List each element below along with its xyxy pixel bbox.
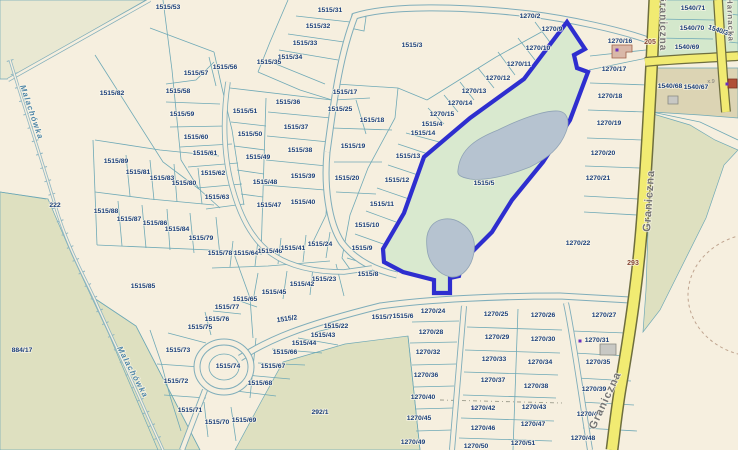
parcel-label[interactable]: 1515/49 [246, 154, 271, 161]
parcel-label[interactable]: 1515/72 [164, 378, 189, 385]
parcel-label[interactable]: 1515/62 [201, 170, 226, 177]
parcel-label[interactable]: 1270/47 [521, 421, 546, 428]
parcel-label[interactable]: 1515/47 [257, 202, 282, 209]
parcel-label[interactable]: 1515/66 [273, 349, 298, 356]
parcel-label[interactable]: 1270/49 [401, 439, 426, 446]
parcel-label[interactable]: 1515/12 [385, 177, 410, 184]
parcel-label[interactable]: 1270/19 [597, 120, 622, 127]
parcel-label[interactable]: 1515/32 [306, 23, 331, 30]
parcel-label[interactable]: 1515/5 [474, 180, 495, 187]
parcel-label[interactable]: 1515/22 [324, 323, 349, 330]
parcel-label[interactable]: 1270/10 [526, 45, 551, 52]
parcel-label[interactable]: 1540/70 [680, 25, 705, 32]
parcel-label[interactable]: 1270/46 [471, 425, 496, 432]
parcel-label[interactable]: 1515/23 [312, 276, 337, 283]
parcel-label[interactable]: 1515/89 [104, 158, 129, 165]
parcel-label[interactable]: 1270/18 [598, 93, 623, 100]
parcel-label[interactable]: 1270/36 [414, 372, 439, 379]
parcel-label[interactable]: 1270/15 [430, 111, 455, 118]
parcel-label[interactable]: 1515/19 [341, 143, 366, 150]
parcel-label[interactable]: 1515/46 [258, 248, 283, 255]
parcel-label[interactable]: 1540/67 [684, 84, 709, 91]
parcel-label[interactable]: 1270/38 [524, 383, 549, 390]
parcel-label[interactable]: 222 [49, 202, 61, 209]
land-class-label: x.9 [707, 79, 714, 85]
parcel-label[interactable]: 1270/16 [608, 38, 633, 45]
parcel-label[interactable]: 1515/59 [170, 111, 195, 118]
parcel-label[interactable]: 1270/28 [419, 329, 444, 336]
parcel-label[interactable]: 292/1 [311, 409, 328, 416]
map-viewport[interactable]: 1515/531515/311515/321515/331515/341515/… [0, 0, 738, 450]
parcel-label[interactable]: 1515/3 [402, 42, 423, 49]
parcel-label[interactable]: 1515/13 [396, 153, 421, 160]
parcel-label[interactable]: 1540/68 [658, 83, 683, 90]
parcel-label[interactable]: 1270/12 [486, 75, 511, 82]
parcel-label[interactable]: 1515/39 [291, 173, 316, 180]
parcel-label[interactable]: 1270/51 [511, 440, 536, 447]
parcel-label[interactable]: 1270/50 [464, 443, 489, 450]
parcel-label[interactable]: 1270/40 [411, 394, 436, 401]
parcel-label[interactable]: 1270/35 [586, 359, 611, 366]
road-number-label: 293 [627, 260, 639, 267]
parcel-label[interactable]: 1515/8 [358, 271, 379, 278]
parcel-label[interactable]: 1515/80 [172, 180, 197, 187]
parcel-marker-icon [726, 83, 729, 86]
parcel-label[interactable]: 1515/48 [253, 179, 278, 186]
parcel-label[interactable]: 1270/9 [542, 26, 563, 33]
road-number-label: 205 [644, 39, 656, 46]
parcel-label[interactable]: 1515/63 [205, 194, 230, 201]
parcel-label[interactable]: 1515/85 [131, 283, 156, 290]
parcel-label[interactable]: 1515/25 [328, 106, 353, 113]
parcel-label[interactable]: 1270/22 [566, 240, 591, 247]
parcel-label[interactable]: 1270/48 [571, 435, 596, 442]
parcel-label[interactable]: 1515/65 [233, 296, 258, 303]
parcel-label[interactable]: 1515/51 [233, 108, 258, 115]
cadastral-map[interactable]: 1515/531515/311515/321515/331515/341515/… [0, 0, 738, 450]
parcel-label[interactable]: 1515/61 [193, 150, 218, 157]
parcel-label[interactable]: 1515/38 [288, 147, 313, 154]
parcel-label[interactable]: 884/17 [12, 347, 33, 354]
parcel-label[interactable]: 1270/34 [528, 359, 553, 366]
parcel-label[interactable]: 1515/44 [292, 340, 317, 347]
parcel-label[interactable]: 1515/84 [165, 226, 190, 233]
parcel-label[interactable]: 1515/9 [352, 245, 373, 252]
parcel-label[interactable]: 1515/31 [318, 7, 343, 14]
parcel-label[interactable]: 1515/81 [126, 169, 151, 176]
parcel-label[interactable]: 1270/11 [507, 61, 531, 68]
parcel-label[interactable]: 1540/69 [675, 44, 700, 51]
parcel-label[interactable]: 1270/14 [448, 100, 473, 107]
parcel-label[interactable]: 1515/53 [156, 4, 181, 11]
parcel-label[interactable]: 1270/27 [592, 312, 617, 319]
parcel-label[interactable]: 1515/14 [411, 130, 436, 137]
parcel-label[interactable]: 1540/71 [681, 5, 706, 12]
parcel-label[interactable]: 1270/43 [522, 404, 547, 411]
parcel-label[interactable]: 1515/45 [262, 289, 287, 296]
parcel-label[interactable]: 1515/34 [278, 54, 303, 61]
parcel-label[interactable]: 1515/6 [393, 313, 414, 320]
parcel-label[interactable]: 1270/20 [591, 150, 616, 157]
street-name-label: Harnacka [725, 0, 736, 42]
parcel-label[interactable]: 1515/67 [261, 363, 286, 370]
parcel-label[interactable]: 1515/37 [284, 124, 309, 131]
parcel-label[interactable]: 1515/17 [333, 89, 358, 96]
parcel-label[interactable]: 1515/70 [205, 419, 230, 426]
parcel-label[interactable]: 1270/17 [602, 66, 627, 73]
street-name-label: Graniczna [657, 0, 668, 51]
parcel-marker-icon [579, 340, 582, 343]
parcel-label[interactable]: 1270/2 [520, 13, 541, 20]
parcel-label[interactable]: 1515/4 [422, 121, 443, 128]
parcel-label[interactable]: 1515/58 [166, 88, 191, 95]
parcel-label[interactable]: 1515/64 [234, 250, 259, 257]
parcel-label[interactable]: 1270/25 [484, 311, 509, 318]
parcel-label[interactable]: 1270/42 [471, 405, 496, 412]
parcel-label[interactable]: 1515/50 [238, 131, 263, 138]
parcel-label[interactable]: 1515/75 [188, 324, 213, 331]
parcel-label[interactable]: 1515/73 [166, 347, 191, 354]
parcel-label[interactable]: 1270/32 [416, 349, 441, 356]
parcel-marker-icon [616, 49, 619, 52]
parcel-label[interactable]: 1270/37 [481, 377, 506, 384]
building [600, 344, 616, 355]
parcel-label[interactable]: 1270/33 [482, 356, 507, 363]
parcel-label[interactable]: 1515/68 [248, 380, 273, 387]
parcel-label[interactable]: 1270/24 [421, 308, 446, 315]
parcel-label[interactable]: 1515/10 [355, 222, 380, 229]
parcel-label[interactable]: 1515/82 [100, 90, 125, 97]
parcel-label[interactable]: 1515/77 [215, 304, 240, 311]
parcel-label[interactable]: 1515/57 [184, 70, 209, 77]
parcel-label[interactable]: 1515/43 [311, 332, 336, 339]
parcel-label[interactable]: 1515/36 [276, 99, 301, 106]
parcel-label[interactable]: 1515/35 [257, 59, 282, 66]
parcel-label[interactable]: 1270/21 [586, 175, 611, 182]
parcel-label[interactable]: 1515/40 [291, 199, 316, 206]
parcel-label[interactable]: 1515/18 [360, 117, 385, 124]
building [668, 96, 678, 104]
parcel-label[interactable]: 1515/71 [178, 407, 203, 414]
parcel-label[interactable]: 1270/29 [485, 334, 510, 341]
parcel-label[interactable]: 1270/30 [531, 336, 556, 343]
parcel-label[interactable]: 1270/45 [407, 415, 432, 422]
parcel-label[interactable]: 1515/76 [205, 316, 230, 323]
parcel-label[interactable]: 1515/88 [94, 208, 119, 215]
parcel-label[interactable]: 1515/69 [232, 417, 257, 424]
parcel-label[interactable]: 1270/26 [531, 312, 556, 319]
parcel-label[interactable]: 1515/78 [208, 250, 233, 257]
parcel-label[interactable]: 1270/13 [462, 88, 487, 95]
parcel-label[interactable]: 1515/7 [372, 314, 393, 321]
parcel-label[interactable]: 1515/60 [184, 134, 209, 141]
parcel-label[interactable]: 1515/11 [370, 201, 394, 208]
parcel-label[interactable]: 1515/87 [117, 216, 142, 223]
building [728, 79, 737, 88]
parcel-label[interactable]: 1270/31 [585, 337, 610, 344]
parcel-label[interactable]: 1515/42 [290, 281, 315, 288]
parcel-label[interactable]: 1515/56 [213, 64, 238, 71]
parcel-label[interactable]: 1515/79 [189, 235, 214, 242]
parcel-label[interactable]: 1515/41 [281, 245, 306, 252]
parcel-label[interactable]: 1515/24 [308, 241, 333, 248]
parcel-label[interactable]: 1515/74 [216, 363, 241, 370]
parcel-label[interactable]: 1515/33 [293, 40, 318, 47]
parcel-label[interactable]: 1515/20 [335, 175, 360, 182]
